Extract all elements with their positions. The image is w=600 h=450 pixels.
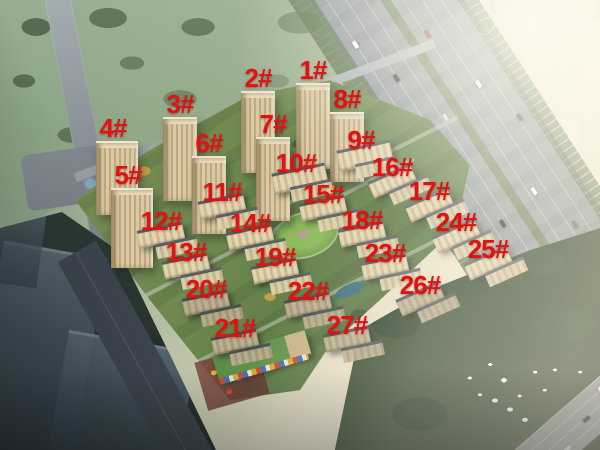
building-labels-layer: 1#2#3#4#5#6#7#8#9#10#11#12#13#14#15#16#1… [0,0,600,450]
building-label-17: 17# [409,178,449,204]
building-label-26: 26# [400,272,440,298]
building-label-25: 25# [468,236,508,262]
building-label-13: 13# [166,239,206,265]
building-label-7: 7# [260,111,287,137]
aerial-rendering: 1#2#3#4#5#6#7#8#9#10#11#12#13#14#15#16#1… [0,0,600,450]
building-label-19: 19# [255,244,295,270]
building-label-3: 3# [167,91,194,117]
building-label-1: 1# [300,57,327,83]
building-label-2: 2# [245,65,272,91]
building-label-15: 15# [303,181,343,207]
building-label-8: 8# [334,86,361,112]
building-label-16: 16# [372,154,412,180]
building-label-4: 4# [100,115,127,141]
building-label-23: 23# [365,240,405,266]
building-label-12: 12# [141,208,181,234]
building-label-10: 10# [276,150,316,176]
building-label-9: 9# [348,127,375,153]
building-label-5: 5# [115,162,142,188]
building-label-6: 6# [196,130,223,156]
building-label-27: 27# [327,312,367,338]
building-label-21: 21# [215,315,255,341]
building-label-14: 14# [230,210,270,236]
building-label-24: 24# [436,209,476,235]
building-label-20: 20# [186,276,226,302]
building-label-18: 18# [342,207,382,233]
building-label-11: 11# [203,179,242,205]
building-label-22: 22# [288,278,328,304]
